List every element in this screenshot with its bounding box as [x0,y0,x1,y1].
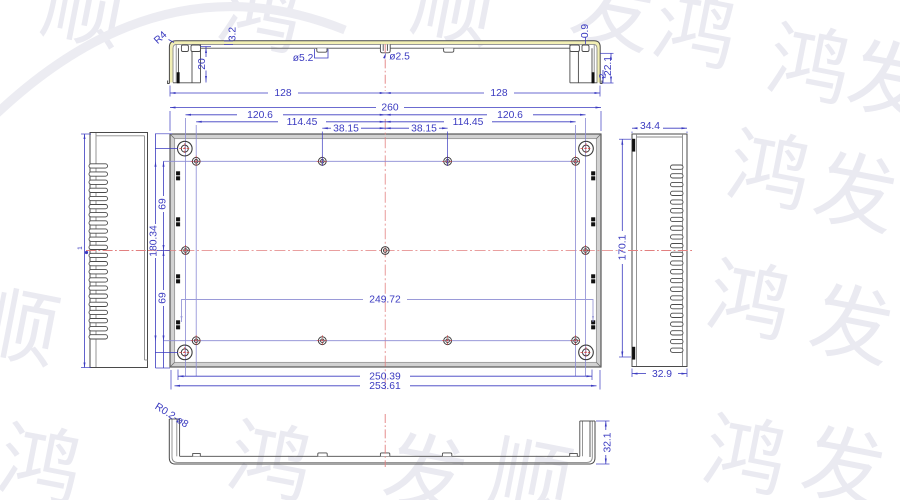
svg-text:发: 发 [376,423,474,500]
svg-text:顺: 顺 [481,427,579,500]
svg-text:38.15: 38.15 [411,123,437,134]
svg-text:发: 发 [802,274,900,379]
svg-text:170.1: 170.1 [617,234,628,260]
svg-text:253.61: 253.61 [369,381,401,392]
svg-text:114.45: 114.45 [287,117,318,128]
svg-text:0.9: 0.9 [580,24,591,39]
svg-text:2: 2 [598,73,608,78]
svg-text:249.72: 249.72 [369,295,401,306]
svg-text:R4: R4 [152,29,169,46]
svg-text:R0.2-ø8: R0.2-ø8 [153,401,191,430]
svg-text:180.34: 180.34 [149,225,160,257]
svg-text:发: 发 [806,142,900,247]
svg-text:鸿: 鸿 [0,414,89,500]
svg-text:34.4: 34.4 [640,121,660,132]
svg-text:69: 69 [158,292,169,304]
svg-text:38.15: 38.15 [333,123,359,134]
svg-text:ø2.5: ø2.5 [389,52,410,63]
svg-text:20: 20 [197,58,208,70]
svg-text:3.2: 3.2 [228,27,239,42]
svg-text:鸿: 鸿 [720,120,818,225]
svg-text:22.1: 22.1 [603,56,614,76]
svg-text:69: 69 [158,198,169,210]
svg-text:鸿: 鸿 [696,405,794,500]
svg-text:顺: 顺 [0,276,66,381]
svg-text:鸿: 鸿 [700,250,798,355]
svg-text:114.45: 114.45 [453,117,484,128]
svg-text:128: 128 [490,88,507,99]
svg-text:32.1: 32.1 [603,432,614,452]
svg-text:鸿: 鸿 [221,411,319,500]
svg-text:120.6: 120.6 [247,110,273,121]
svg-text:32.9: 32.9 [652,369,672,380]
svg-text:120.6: 120.6 [497,110,523,121]
svg-text:ø5.2: ø5.2 [293,53,314,64]
svg-text:发: 发 [794,416,892,500]
svg-text:鸿: 鸿 [646,0,744,83]
svg-text:260: 260 [381,103,398,114]
svg-text:1: 1 [77,246,84,250]
svg-text:128: 128 [274,88,291,99]
